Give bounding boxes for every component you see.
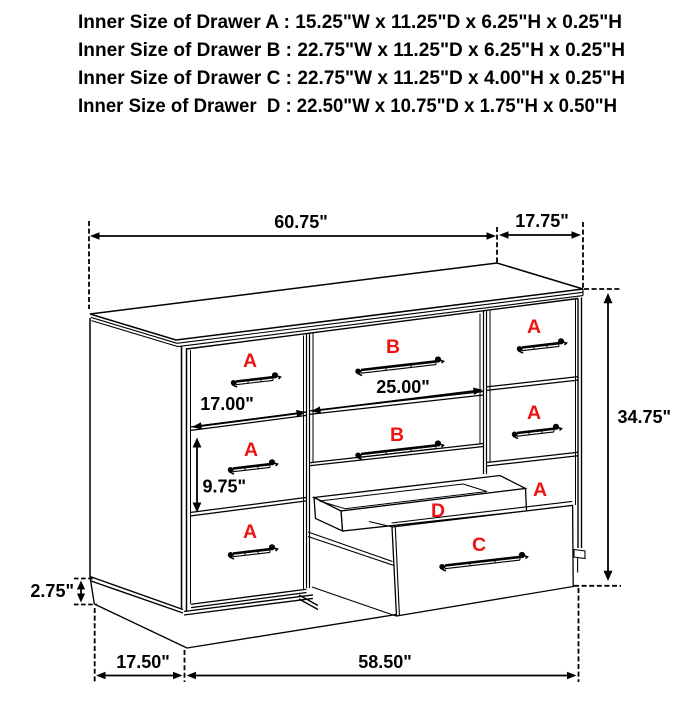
- svg-text:60.75": 60.75": [274, 212, 328, 232]
- svg-text:17.75": 17.75": [515, 211, 569, 231]
- svg-text:17.00": 17.00": [200, 394, 254, 414]
- svg-text:B: B: [386, 336, 400, 358]
- svg-text:Inner Size of Drawer B : 22.75: Inner Size of Drawer B : 22.75"W x 11.25…: [78, 40, 625, 61]
- svg-text:Inner Size of Drawer C : 22.75: Inner Size of Drawer C : 22.75"W x 11.25…: [78, 68, 625, 89]
- svg-text:25.00": 25.00": [376, 377, 430, 397]
- svg-text:9.75": 9.75": [203, 477, 247, 497]
- svg-text:2.75": 2.75": [30, 581, 74, 601]
- svg-text:C: C: [472, 534, 486, 556]
- svg-text:A: A: [527, 316, 541, 338]
- svg-text:D: D: [431, 500, 445, 522]
- svg-text:17.50": 17.50": [116, 652, 170, 672]
- svg-text:Inner Size of Drawer D : 22.5: Inner Size of Drawer D : 22.50"W x 10.75…: [78, 96, 617, 117]
- svg-text:Inner Size of Drawer A : 15.25: Inner Size of Drawer A : 15.25"W x 11.25…: [78, 12, 622, 33]
- svg-text:A: A: [243, 350, 257, 372]
- svg-text:A: A: [533, 479, 547, 501]
- svg-text:34.75": 34.75": [618, 407, 672, 427]
- svg-text:B: B: [390, 424, 404, 446]
- svg-text:58.50": 58.50": [358, 652, 412, 672]
- svg-text:A: A: [527, 402, 541, 424]
- svg-text:A: A: [243, 521, 257, 543]
- svg-text:A: A: [244, 439, 258, 461]
